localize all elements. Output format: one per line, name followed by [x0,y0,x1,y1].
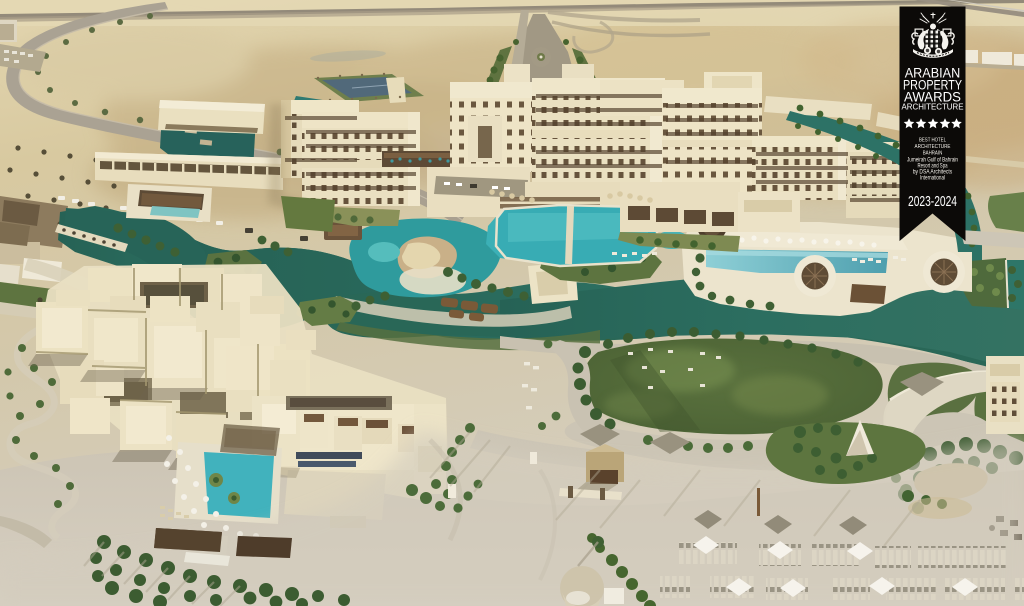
svg-text:International: International [920,175,945,181]
svg-text:2023-2024: 2023-2024 [908,194,957,210]
svg-text:Jumeirah Gulf of Bahrain: Jumeirah Gulf of Bahrain [907,157,958,163]
svg-text:BAHRAIN: BAHRAIN [923,150,943,156]
svg-text:ARCHITECTURE: ARCHITECTURE [902,102,964,112]
svg-text:ARCHITECTURE: ARCHITECTURE [915,144,951,150]
svg-text:BEST HOTEL: BEST HOTEL [919,138,947,144]
svg-text:Resort and Spa: Resort and Spa [918,164,948,170]
